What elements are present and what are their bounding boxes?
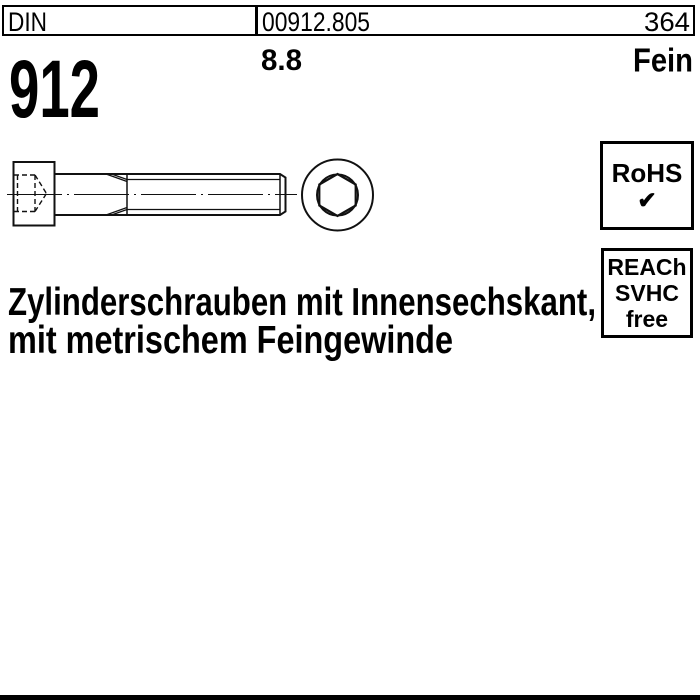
standard-number: 912 [9,44,100,135]
socket-hexagon [319,174,355,216]
screw-front-view [302,160,373,231]
screw-head-outline [14,162,55,226]
socket-hidden-lines [14,175,47,212]
product-title-line1: Zylinderschrauben mit Innensechskant, [8,281,596,324]
strength-class: 8.8 [261,44,302,77]
thread-variant-label: Fein [633,42,693,79]
head-outer-circle [302,160,373,231]
standard-label: DIN [8,7,47,37]
socket-circle [317,175,358,216]
page-number: 364 [644,7,690,37]
article-code: 00912.805 [262,7,370,37]
screw-side-view [7,162,297,226]
page-vector-layer: DIN 00912.805 364 8.8 Fein 912 Zylinders… [0,0,700,700]
product-title-line2: mit metrischem Feingewinde [8,319,453,362]
